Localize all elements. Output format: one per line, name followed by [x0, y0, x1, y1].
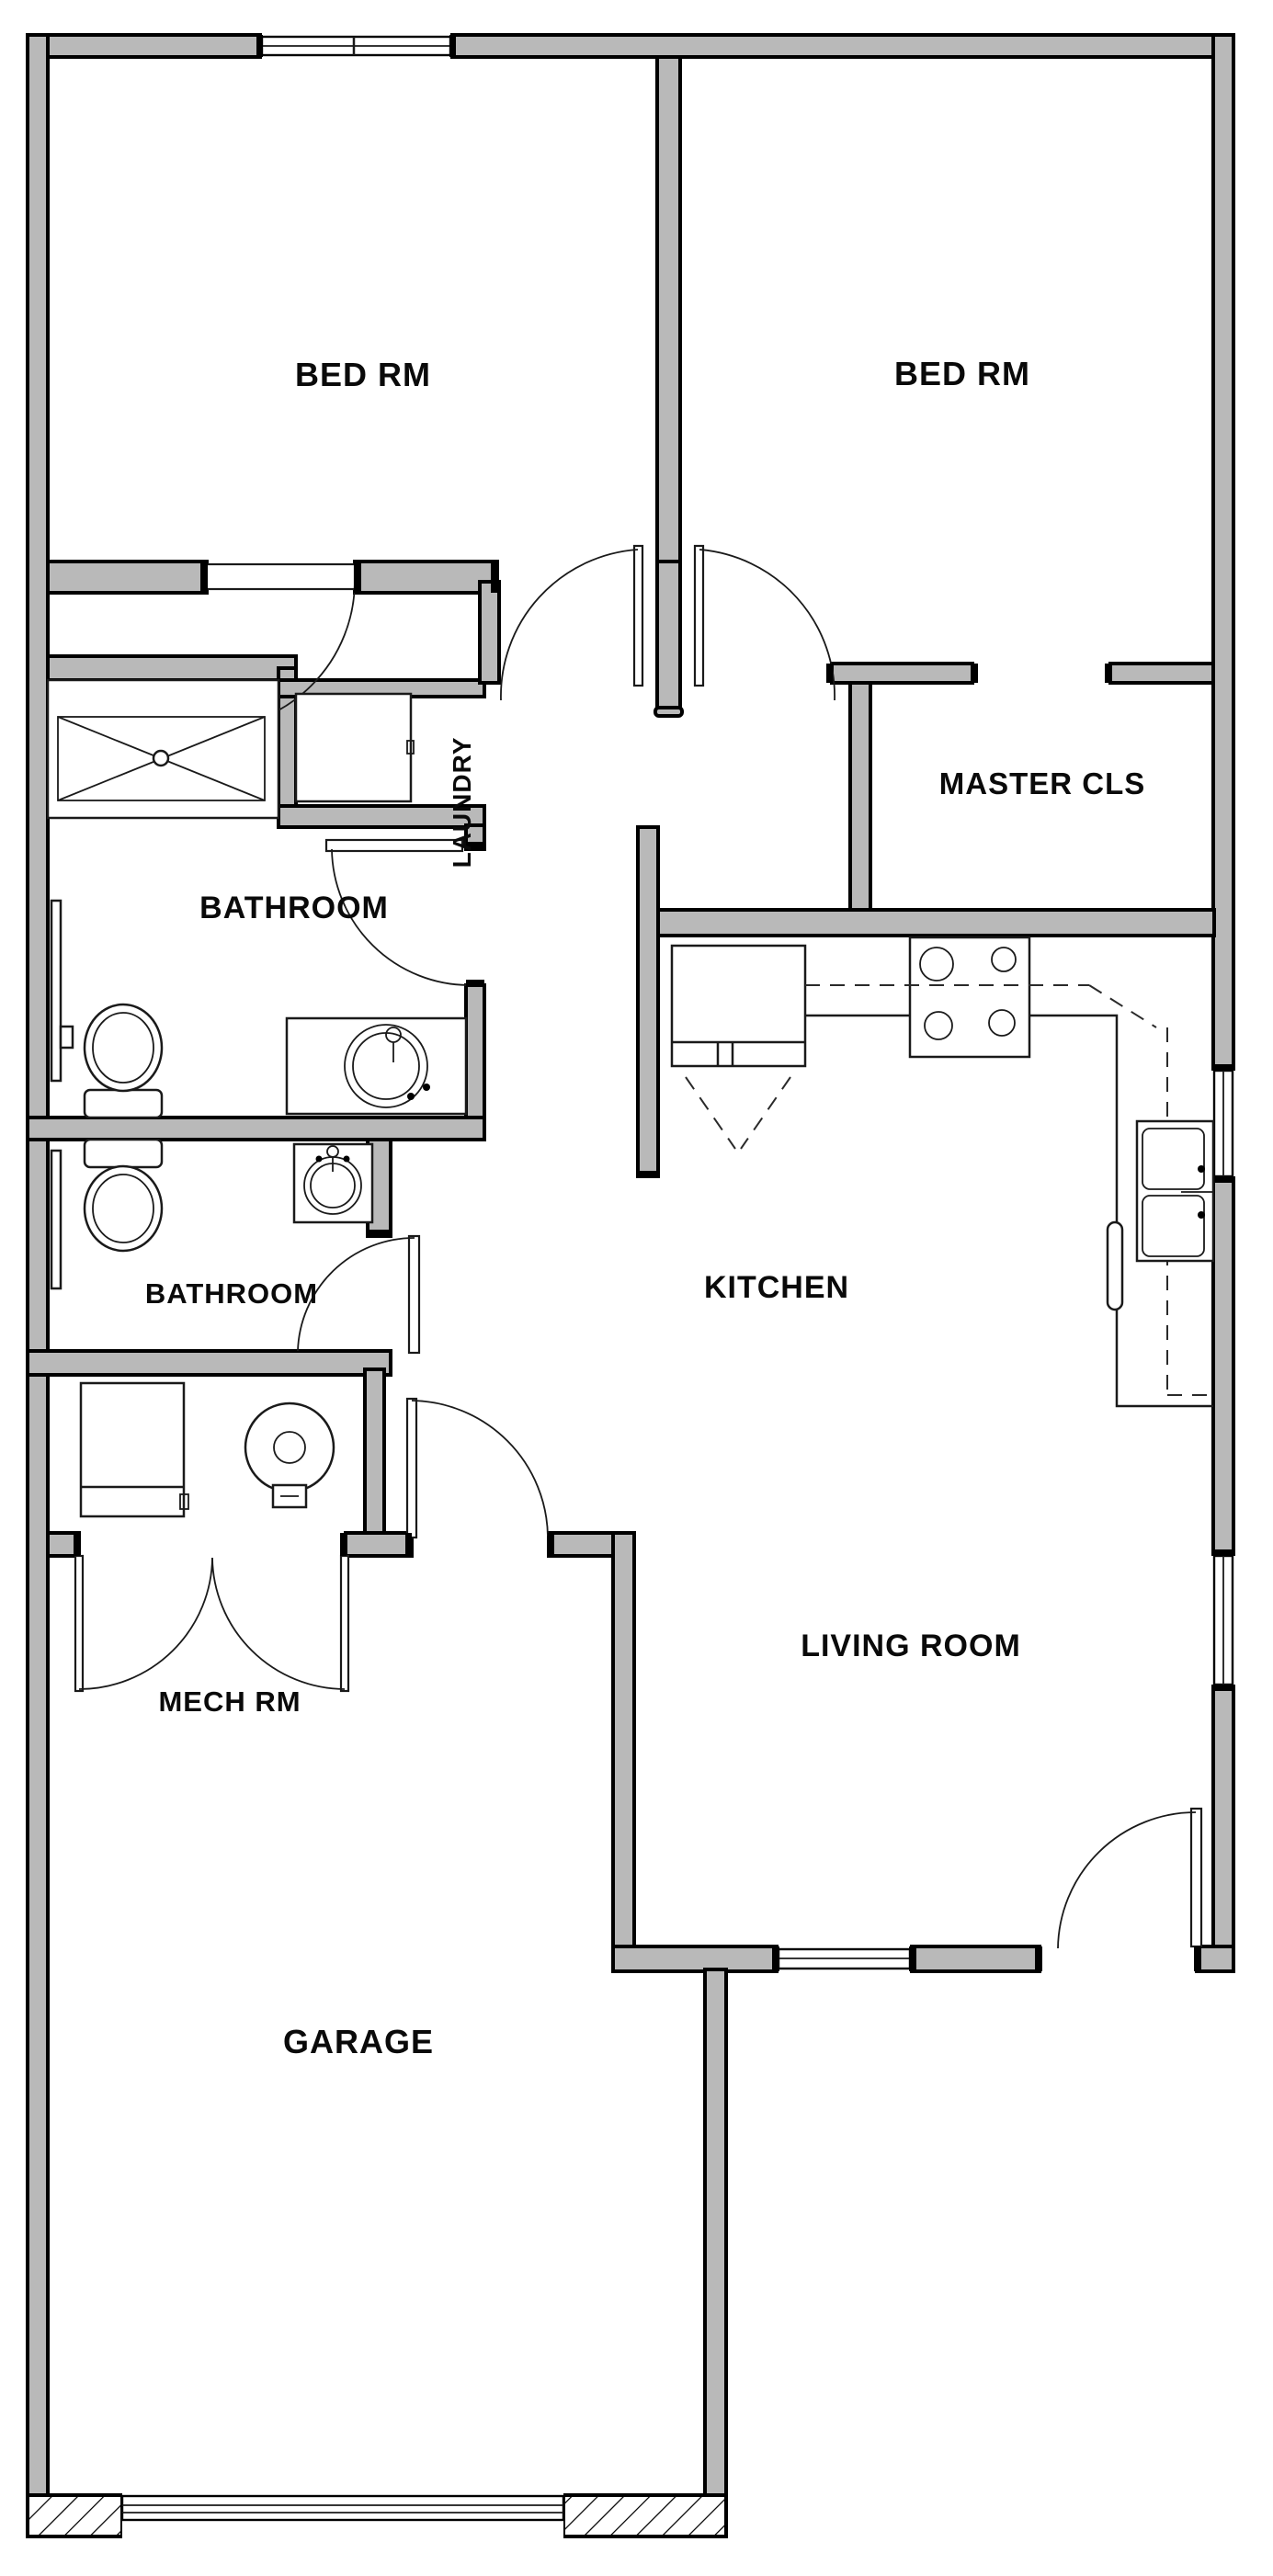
living-room-side-window [1214, 1556, 1233, 1685]
kitchen-sink [1137, 1121, 1213, 1261]
shower [48, 680, 278, 818]
sink-2 [294, 1144, 372, 1222]
washer [296, 694, 414, 801]
kitchen-north-wall [638, 910, 1214, 936]
water-heater [245, 1403, 334, 1507]
range-stove [910, 937, 1029, 1057]
garage-sill-right [563, 2495, 726, 2536]
room-label-bathroom2: BATHROOM [145, 1277, 318, 1310]
room-label-kitchen: KITCHEN [704, 1270, 849, 1305]
kitchen-west-wall [638, 827, 658, 1176]
kitchen-counter-return [1108, 1222, 1122, 1310]
room-label-mech: MECH RM [158, 1685, 301, 1718]
refrigerator [672, 946, 805, 1149]
garage-sill-left [28, 2495, 122, 2536]
bedroom-divider-wall [657, 57, 680, 562]
kitchen-window [1214, 1071, 1233, 1176]
furnace [81, 1383, 188, 1516]
grab-bar-1 [51, 901, 61, 1081]
laundry-east-wall [480, 582, 499, 683]
mech-room-double-doors [75, 1556, 348, 1691]
bathroom1-north-wall [48, 656, 296, 680]
mech-east-wall [365, 1369, 384, 1556]
room-label-bathroom1: BATHROOM [199, 891, 389, 925]
room-label-bed2: BED RM [894, 355, 1030, 392]
closet-west-wall [850, 683, 870, 910]
bedroom1-window [262, 37, 450, 55]
living-west-wall [613, 1533, 634, 1946]
grab-bar-2 [51, 1151, 61, 1288]
front-entry-door [1058, 1809, 1201, 1948]
vanity-sink-1 [287, 1018, 466, 1114]
living-room-bottom-window [779, 1949, 910, 1969]
grab-bar-bracket [61, 1027, 73, 1048]
floor-plan-drawing: BED RM BED RM LAUNDRY MASTER CLS BATHROO… [0, 0, 1273, 2576]
room-label-living: LIVING ROOM [801, 1628, 1021, 1663]
floor-plan: BED RM BED RM LAUNDRY MASTER CLS BATHROO… [0, 0, 1273, 2576]
toilet-1 [85, 1004, 162, 1118]
room-label-bed1: BED RM [295, 356, 431, 393]
interior-walls [28, 57, 1214, 1946]
room-label-garage: GARAGE [283, 2023, 434, 2060]
hall-door-left [501, 546, 642, 700]
bedroom-divider-stub [657, 562, 680, 714]
mech-north-wall [28, 1351, 391, 1375]
toilet-2 [85, 1140, 162, 1251]
fixtures [48, 680, 1213, 1516]
bedroom2-door [695, 546, 835, 700]
garage-door [122, 2496, 563, 2520]
room-label-laundry: LAUNDRY [448, 737, 476, 868]
garage-entry-door [407, 1399, 548, 1538]
bathroom-divider-wall [28, 1118, 484, 1140]
room-label-master-cls: MASTER CLS [939, 766, 1146, 800]
